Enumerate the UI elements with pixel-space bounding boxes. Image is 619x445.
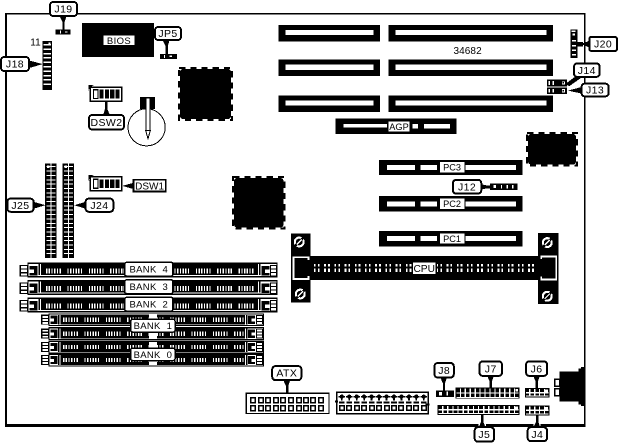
svg-text:J6: J6: [531, 363, 543, 375]
svg-text:BANK 4: BANK 4: [130, 265, 169, 276]
svg-text:J5: J5: [478, 429, 490, 441]
svg-text:J12: J12: [458, 181, 476, 193]
svg-text:BANK 0: BANK 0: [134, 350, 173, 361]
svg-text:J8: J8: [438, 365, 450, 377]
svg-text:BANK 1: BANK 1: [134, 321, 173, 332]
svg-text:J7: J7: [485, 363, 497, 375]
svg-text:BIOS: BIOS: [107, 36, 131, 47]
svg-text:JP5: JP5: [158, 28, 177, 40]
svg-text:J24: J24: [90, 200, 108, 212]
svg-text:J25: J25: [11, 200, 29, 212]
svg-text:J18: J18: [6, 59, 24, 71]
svg-text:J13: J13: [586, 85, 604, 97]
svg-text:BANK 3: BANK 3: [130, 282, 169, 293]
svg-text:J14: J14: [578, 65, 596, 77]
svg-text:J19: J19: [54, 4, 72, 16]
svg-text:ATX: ATX: [276, 368, 297, 380]
svg-text:DSW1: DSW1: [135, 181, 164, 192]
svg-text:AGP: AGP: [389, 122, 408, 132]
svg-text:PC1: PC1: [443, 234, 461, 244]
svg-text:BANK 2: BANK 2: [130, 300, 169, 311]
svg-text:J4: J4: [531, 429, 543, 441]
svg-text:PC3: PC3: [443, 163, 461, 173]
svg-text:J20: J20: [594, 39, 612, 51]
svg-text:34682: 34682: [453, 46, 482, 57]
svg-text:DSW2: DSW2: [91, 117, 123, 129]
svg-text:11: 11: [30, 38, 41, 49]
svg-text:CPU: CPU: [413, 264, 435, 275]
svg-text:PC2: PC2: [443, 199, 461, 209]
